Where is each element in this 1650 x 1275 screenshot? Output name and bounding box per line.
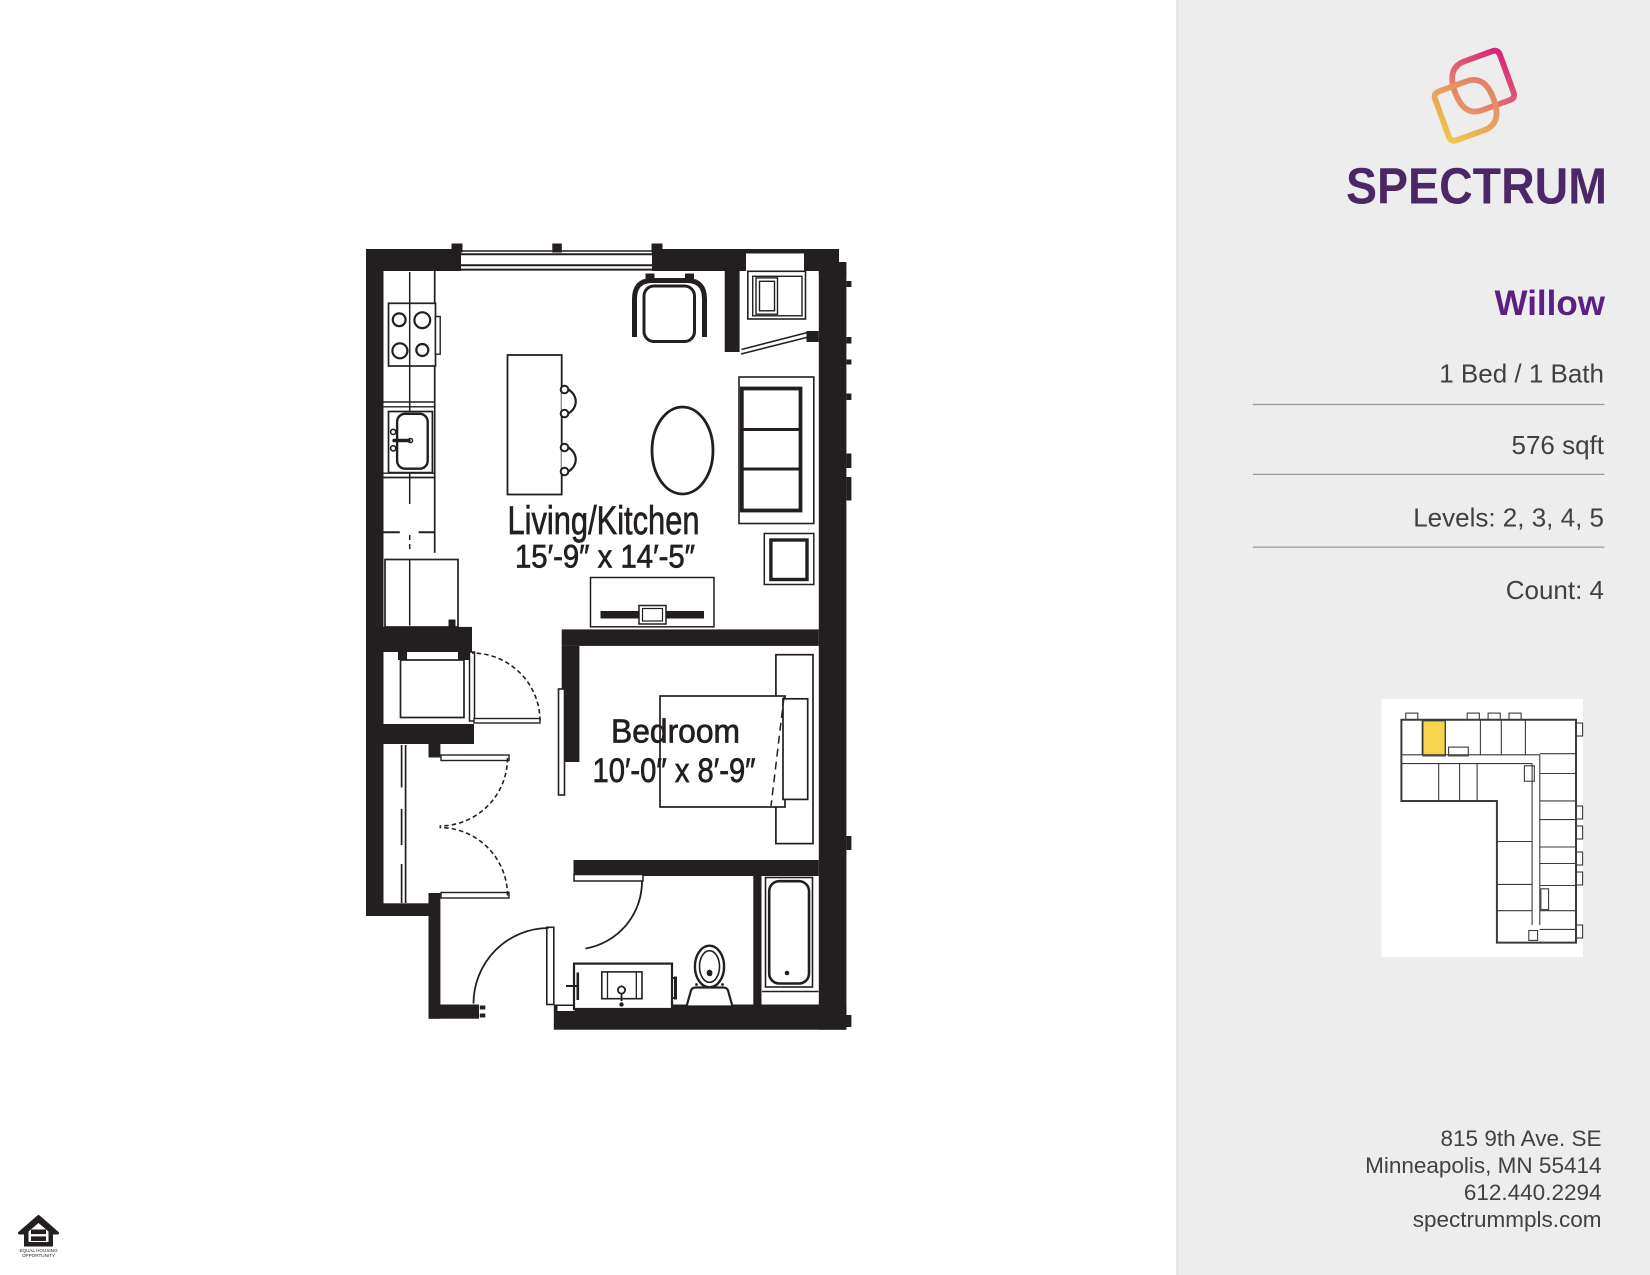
- svg-text:Bedroom: Bedroom: [611, 713, 740, 750]
- svg-text:Count: 4: Count: 4: [1506, 575, 1604, 605]
- svg-text:Willow: Willow: [1494, 284, 1605, 323]
- svg-text:612.440.2294: 612.440.2294: [1464, 1180, 1602, 1205]
- svg-text:Levels: 2, 3, 4, 5: Levels: 2, 3, 4, 5: [1413, 503, 1604, 533]
- svg-text:1 Bed / 1 Bath: 1 Bed / 1 Bath: [1439, 359, 1604, 389]
- svg-text:815 9th Ave. SE: 815 9th Ave. SE: [1441, 1126, 1602, 1151]
- svg-text:15′-9″ x 14′-5″: 15′-9″ x 14′-5″: [515, 539, 695, 575]
- svg-text:576 sqft: 576 sqft: [1511, 430, 1604, 460]
- svg-text:SPECTRUM: SPECTRUM: [1346, 158, 1607, 215]
- svg-text:Living/Kitchen: Living/Kitchen: [508, 499, 700, 543]
- svg-text:spectrummpls.com: spectrummpls.com: [1413, 1207, 1602, 1232]
- svg-text:Minneapolis, MN 55414: Minneapolis, MN 55414: [1365, 1153, 1601, 1178]
- svg-text:10′-0″ x 8′-9″: 10′-0″ x 8′-9″: [593, 752, 756, 790]
- svg-text:OPPORTUNITY: OPPORTUNITY: [22, 1253, 55, 1258]
